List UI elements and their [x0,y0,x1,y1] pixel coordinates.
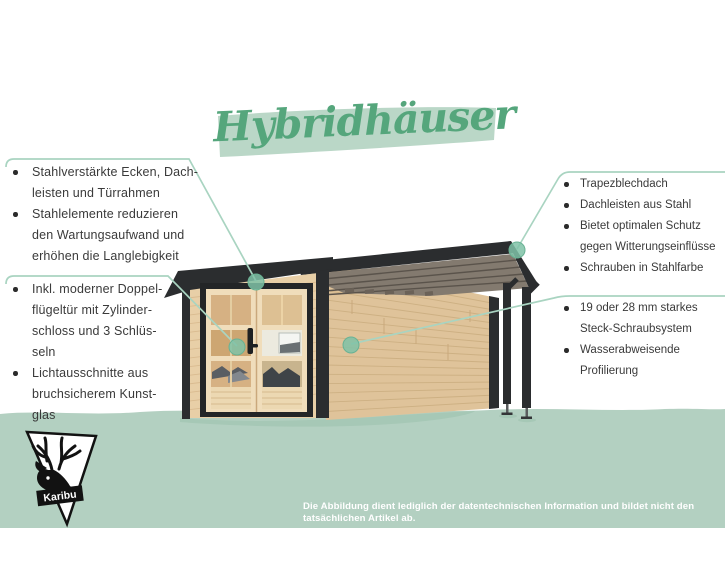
feature-line: Lichtausschnitte aus [6,363,162,384]
door-handle-lever [249,344,258,348]
feature-block-top-left: Stahlverstärkte Ecken, Dach- leisten und… [6,162,198,267]
feature-line: bruchsicherem Kunst- [6,384,162,405]
disclaimer-text: Die Abbildung dient lediglich der datent… [303,501,725,525]
karibu-hybrid-house-infographic: Karibu Hybridhäuser Stahlverstärkte Ecke… [0,0,725,575]
feature-line: glas [6,405,162,426]
feature-line: Wasserabweisende [561,340,698,361]
feature-line: Bietet optimalen Schutz [561,216,716,237]
double-door [200,283,313,417]
bullet-icon [13,371,18,376]
canopy-posts [502,279,539,419]
feature-line: Trapezblechdach [561,174,716,195]
feature-line: schloss und 3 Schlüs- [6,321,162,342]
feature-block-top-right: Trapezblechdach Dachleisten aus Stahl Bi… [561,174,716,279]
door-handle [248,328,254,354]
feature-block-bottom-left: Inkl. moderner Doppel- flügeltür mit Zyl… [6,279,162,426]
callout-dot-door [229,339,245,355]
feature-line: Steck-Schraubsystem [561,319,698,340]
feature-line: Dachleisten aus Stahl [561,195,716,216]
bullet-icon [564,306,569,311]
feature-line: Schrauben in Stahlfarbe [561,258,716,279]
feature-line: flügeltür mit Zylinder- [6,300,162,321]
callout-dot-roof-trim [248,274,264,290]
feature-line: gegen Witterungseinflüsse [561,237,716,258]
feature-line: Stahlelemente reduzieren [6,204,198,225]
bullet-icon [564,348,569,353]
feature-line: 19 oder 28 mm starkes [561,298,698,319]
bullet-icon [564,182,569,187]
feature-block-bottom-right: 19 oder 28 mm starkes Steck-Schraubsyste… [561,298,698,382]
bullet-icon [564,203,569,208]
feature-line: seln [6,342,162,363]
feature-line: den Wartungsaufwand und [6,225,198,246]
feature-line: leisten und Türrahmen [6,183,198,204]
callout-dot-wall [343,337,359,353]
feature-line: Stahlverstärkte Ecken, Dach- [6,162,198,183]
feature-line: erhöhen die Langlebigkeit [6,246,198,267]
bullet-icon [564,224,569,229]
bullet-icon [13,170,18,175]
right-corner-trim [316,259,329,418]
bullet-icon [13,212,18,217]
left-corner-trim [182,280,190,419]
bullet-icon [564,266,569,271]
bullet-icon [13,287,18,292]
feature-line: Inkl. moderner Doppel- [6,279,162,300]
hybrid-house-illustration [164,241,538,420]
callout-dot-canopy [509,242,525,258]
feature-line: Profilierung [561,361,698,382]
